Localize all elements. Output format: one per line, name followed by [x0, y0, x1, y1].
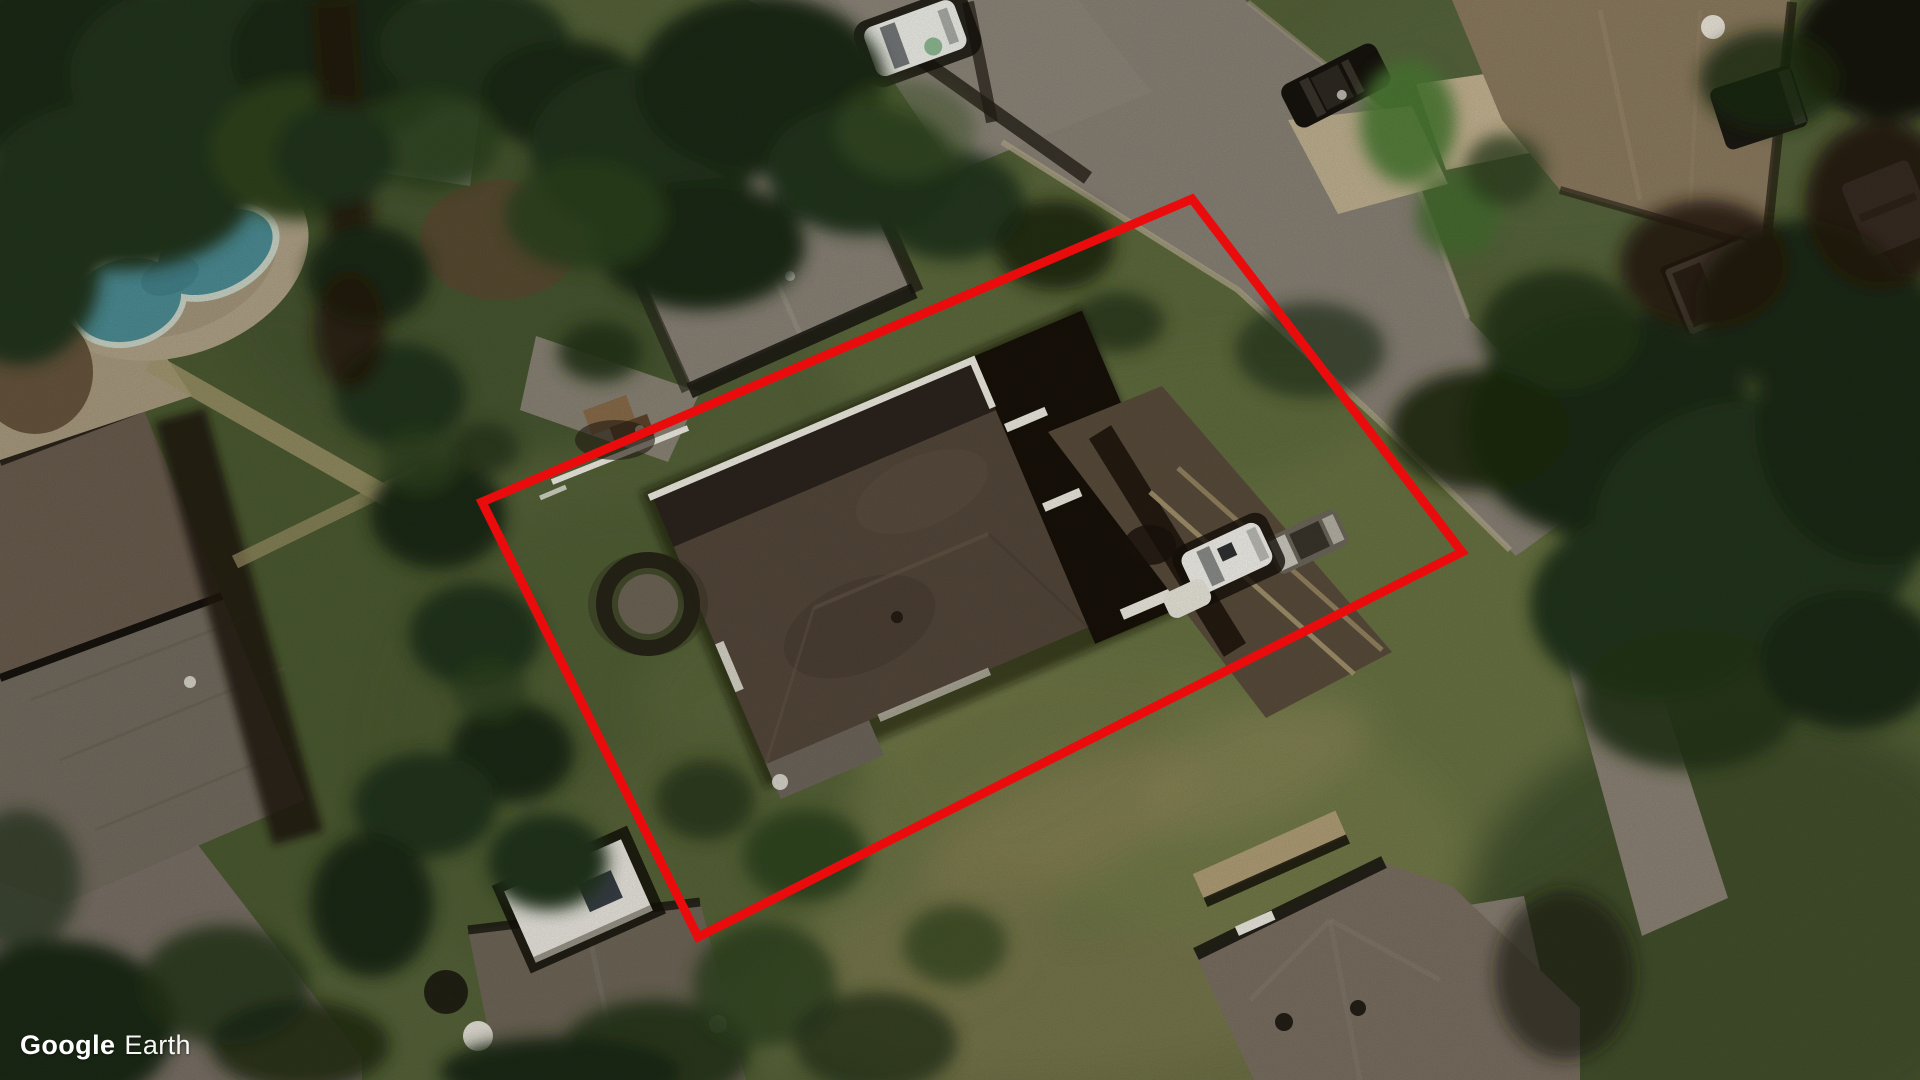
google-earth-viewport[interactable]: GoogleEarth	[0, 0, 1920, 1080]
watermark-product: Earth	[124, 1030, 191, 1060]
image-grain	[0, 0, 1920, 1080]
google-earth-watermark: GoogleEarth	[20, 1030, 191, 1061]
satellite-imagery	[0, 0, 1920, 1080]
watermark-brand: Google	[20, 1030, 115, 1060]
